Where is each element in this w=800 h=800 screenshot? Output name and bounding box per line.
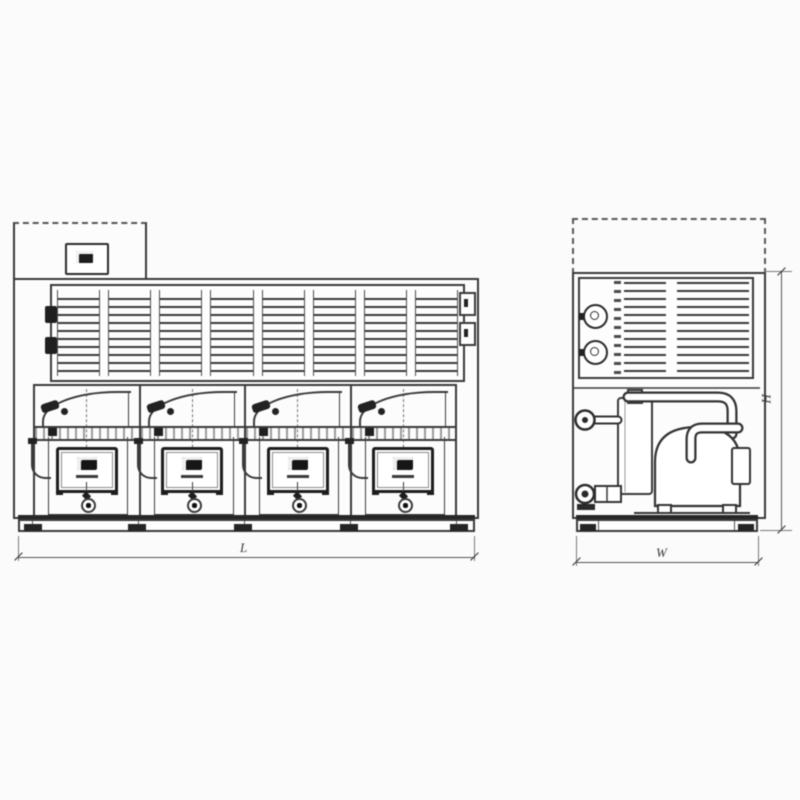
pump-flange-center — [582, 491, 589, 498]
flange-center — [582, 417, 588, 423]
mounting-foot — [580, 524, 596, 531]
pump-foot — [577, 504, 595, 510]
base-seam — [734, 520, 735, 531]
side-base-channel — [576, 519, 758, 532]
compressor-foot — [723, 505, 736, 513]
height-dimension-line — [781, 272, 782, 531]
coil-fin-plate — [614, 281, 621, 375]
compressor-dome — [655, 427, 740, 506]
pipe-flange-icon — [583, 304, 608, 329]
mounting-foot — [738, 524, 754, 531]
pipe-flange-icon — [583, 340, 608, 365]
coil-slats — [624, 282, 666, 374]
dimension-extension-line — [764, 271, 792, 272]
coil-slats — [677, 282, 749, 374]
receiver-tank — [618, 398, 652, 494]
side-control-box-hidden-outline — [572, 218, 766, 274]
side-view: W H — [0, 0, 800, 800]
width-dimension-label: W — [656, 546, 667, 559]
dimension-extension-line — [760, 530, 792, 531]
technical-drawing: L — [0, 0, 800, 800]
compressor-foot — [658, 505, 671, 513]
pump-body — [595, 486, 621, 502]
terminal-box — [732, 448, 750, 484]
side-condenser-coil — [578, 277, 754, 379]
height-dimension-label: H — [760, 394, 773, 403]
side-machinery-compartment — [572, 386, 762, 516]
base-seam — [598, 520, 599, 531]
drawing-sheet: L — [0, 0, 800, 800]
width-dimension-line — [576, 562, 758, 563]
